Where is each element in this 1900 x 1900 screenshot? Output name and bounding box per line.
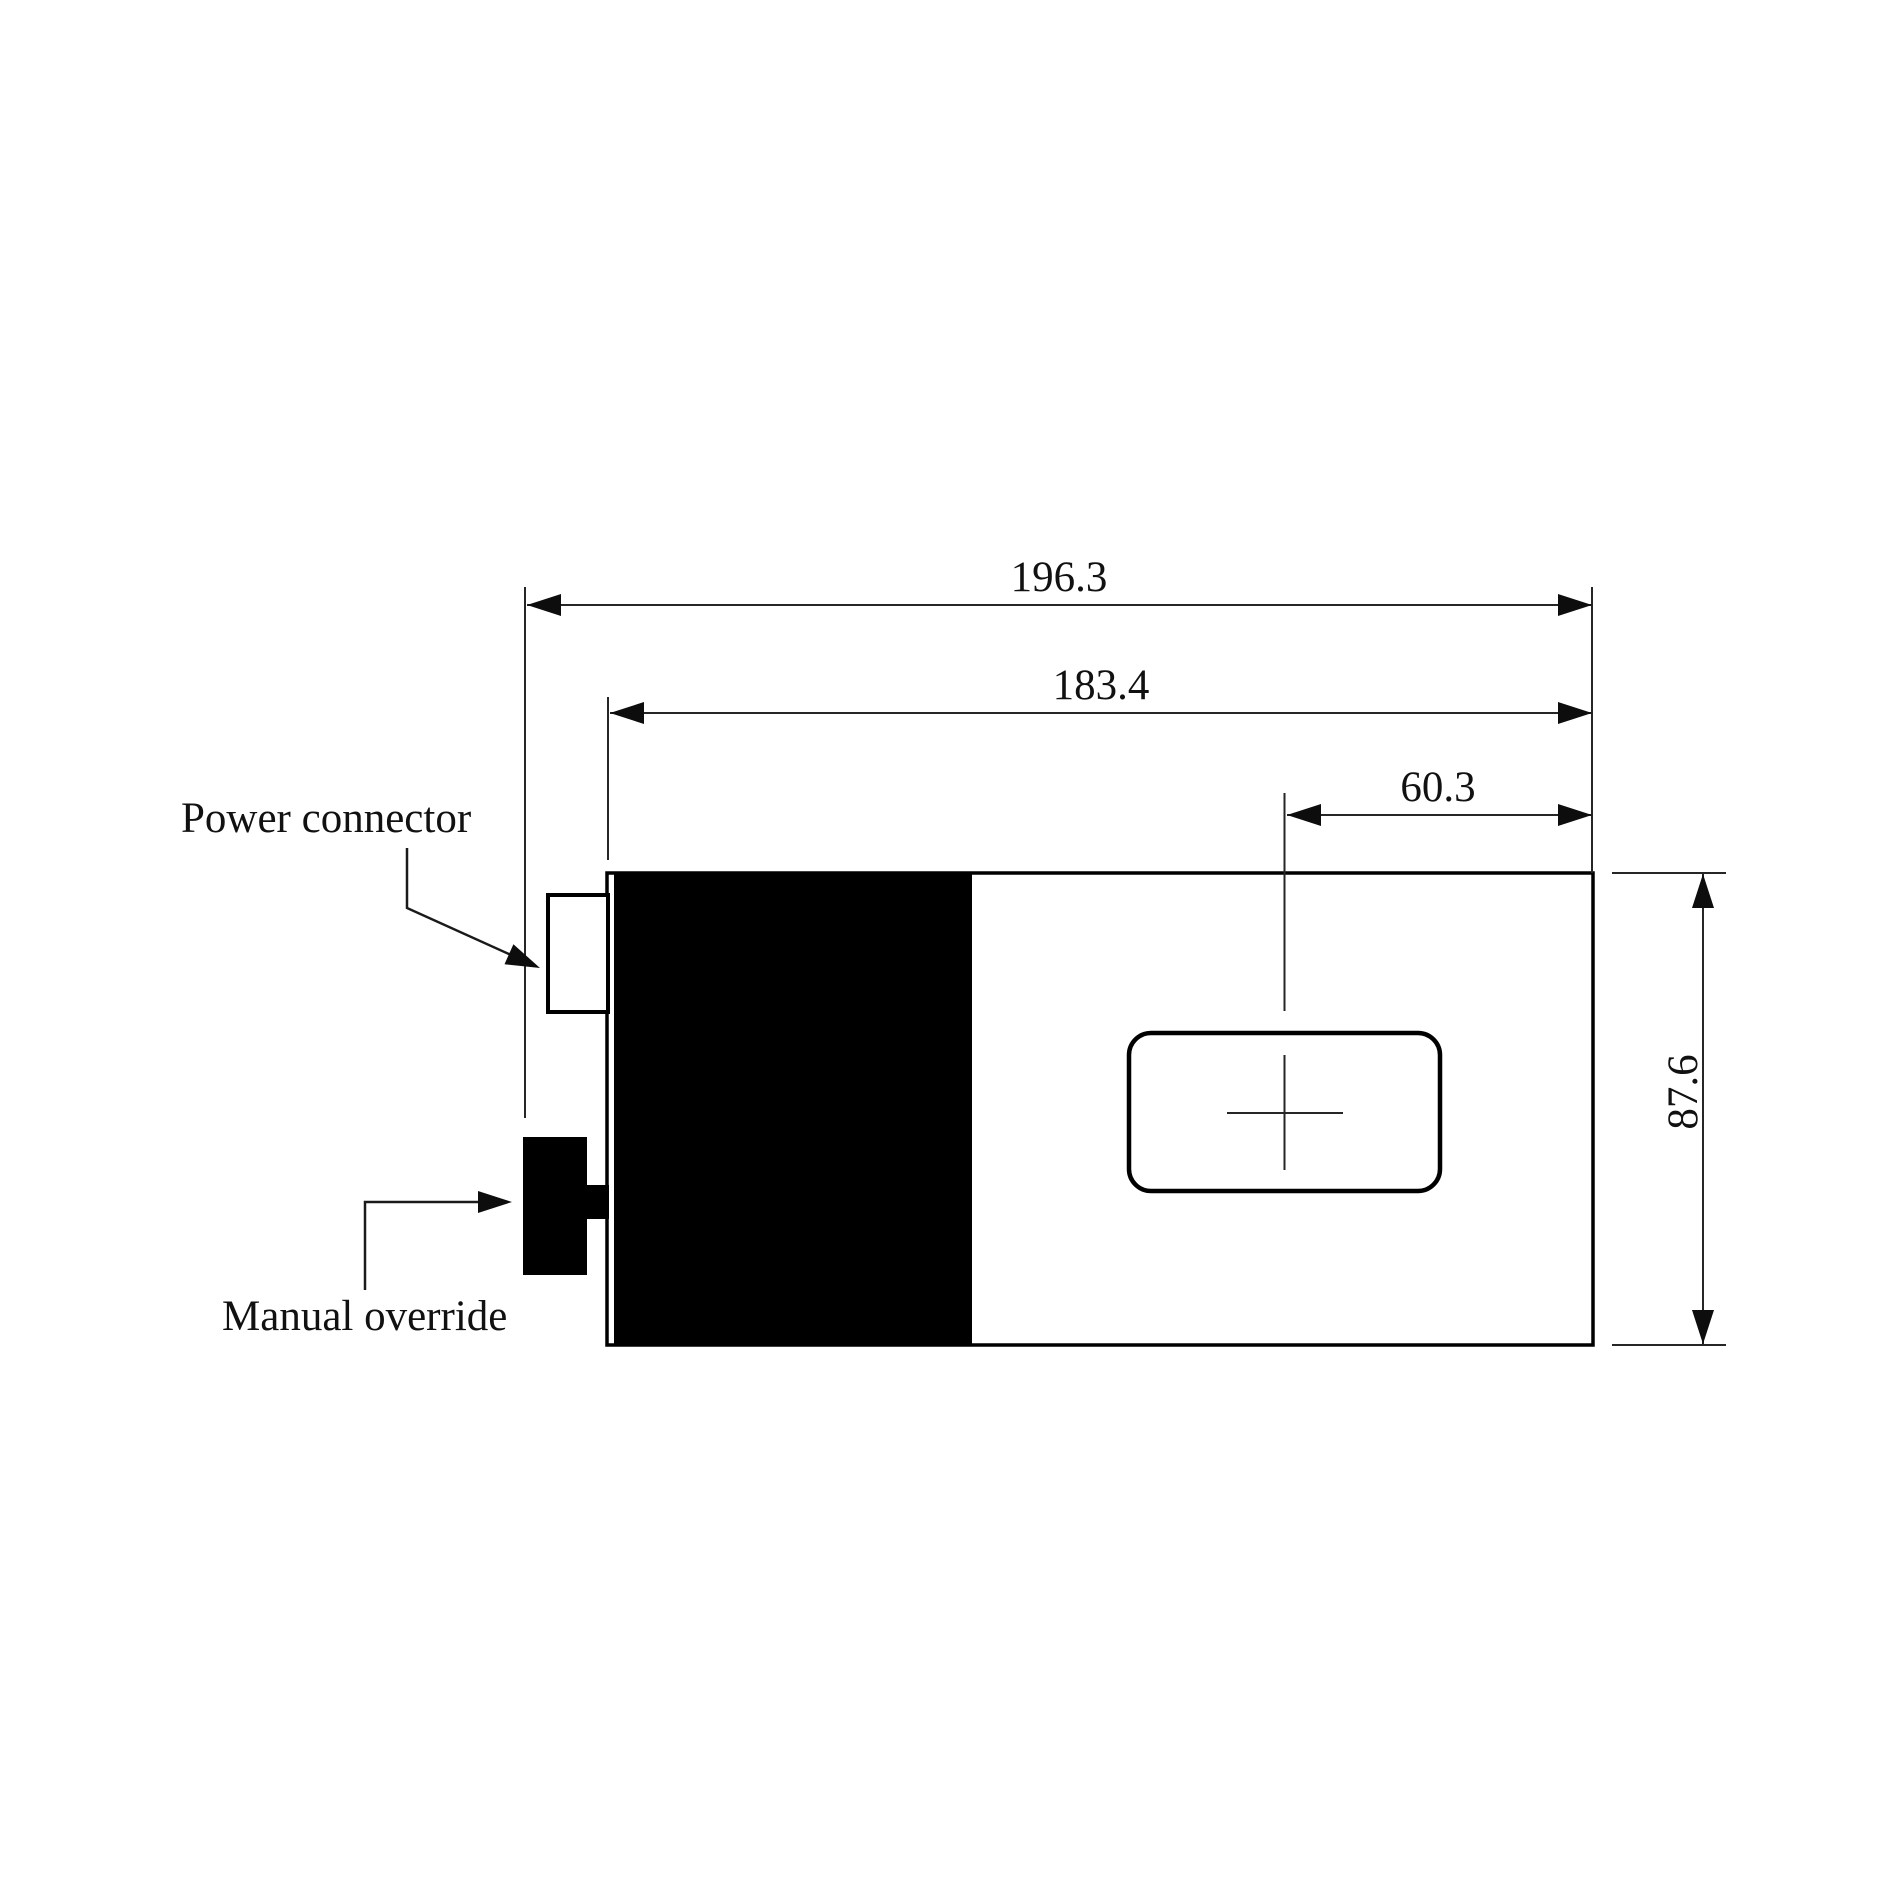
manual-override-leader — [365, 1202, 480, 1290]
dim-overall-length: 196.3 — [527, 554, 1592, 616]
dim-overall-right-arrow-icon — [1558, 594, 1592, 616]
technical-drawing: 196.3 183.4 60.3 87.6 Power connector — [0, 0, 1900, 1900]
power-connector-shape — [548, 895, 608, 1012]
dim-body-right-arrow-icon — [1558, 702, 1592, 724]
body-black-section — [614, 875, 972, 1344]
dim-cutout-offset-value: 60.3 — [1400, 764, 1475, 811]
manual-override-stem — [585, 1185, 609, 1219]
power-connector-callout: Power connector — [181, 795, 540, 968]
dim-body-length-value: 183.4 — [1053, 662, 1150, 709]
power-connector-label: Power connector — [181, 795, 471, 842]
dim-height-bottom-arrow-icon — [1692, 1310, 1714, 1344]
manual-override-label: Manual override — [222, 1293, 507, 1340]
manual-override-knob — [523, 1137, 587, 1275]
dim-overall-length-value: 196.3 — [1011, 554, 1108, 601]
dim-cutout-offset: 60.3 — [1287, 764, 1592, 826]
dim-body-height: 87.6 — [1660, 874, 1714, 1344]
dim-body-left-arrow-icon — [610, 702, 644, 724]
drawing-canvas: 196.3 183.4 60.3 87.6 Power connector — [0, 0, 1900, 1900]
dim-overall-left-arrow-icon — [527, 594, 561, 616]
dim-height-top-arrow-icon — [1692, 874, 1714, 908]
dim-cutout-right-arrow-icon — [1558, 804, 1592, 826]
dim-cutout-left-arrow-icon — [1287, 804, 1321, 826]
dim-body-height-value: 87.6 — [1660, 1054, 1707, 1129]
manual-override-callout: Manual override — [222, 1191, 512, 1340]
dim-body-length: 183.4 — [610, 662, 1592, 724]
manual-override-arrow-icon — [478, 1191, 512, 1213]
power-connector-arrow-icon — [505, 944, 541, 968]
